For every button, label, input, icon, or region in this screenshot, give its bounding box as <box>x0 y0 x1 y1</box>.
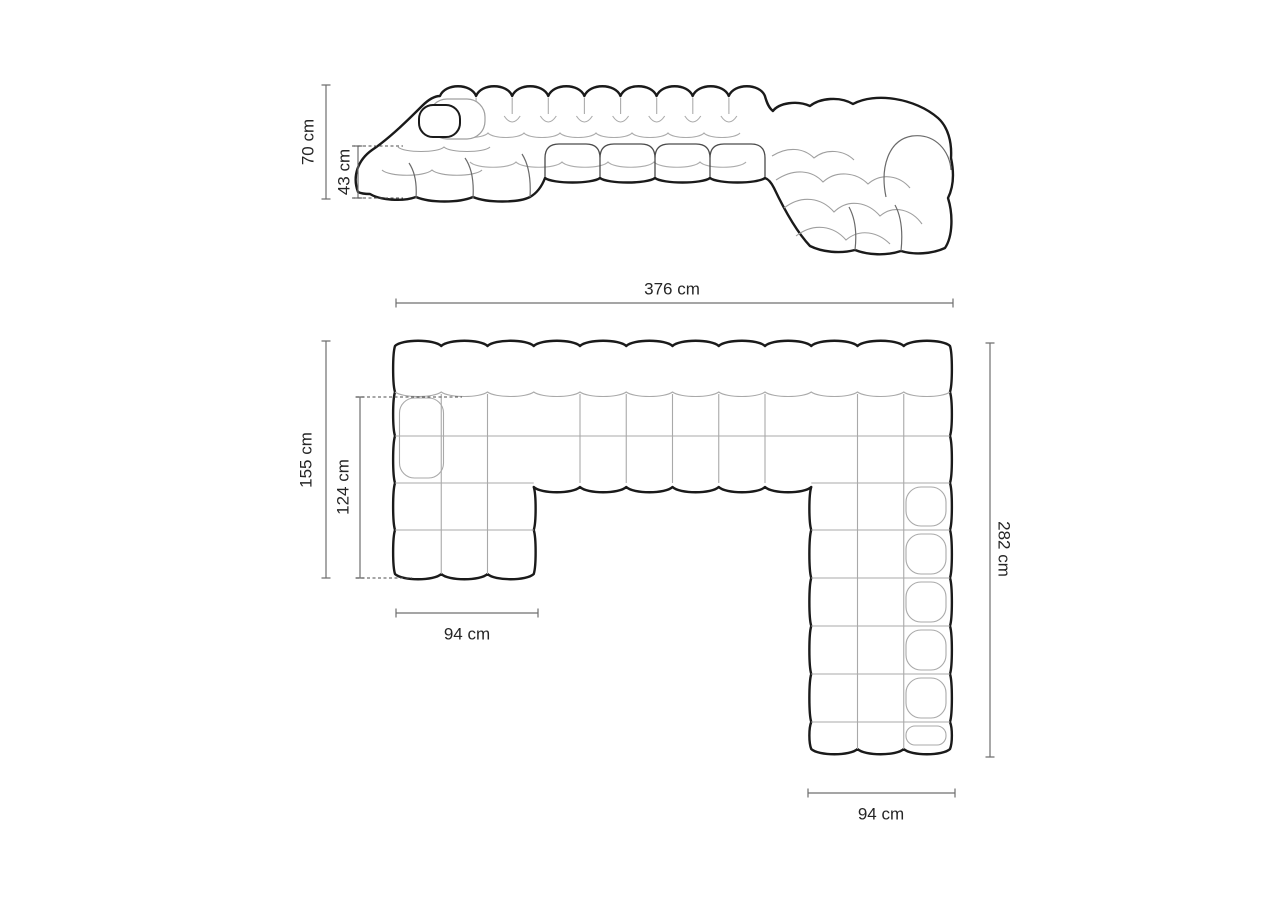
top-view-sofa-drawing <box>393 341 952 755</box>
dim-label-left-chaise-width: 94 cm <box>444 626 490 643</box>
front-view-sofa-drawing <box>356 86 953 254</box>
headrest-cushion-front <box>419 105 460 137</box>
dim-label-total-height: 70 cm <box>300 119 317 165</box>
dim-label-left-depth: 155 cm <box>298 432 315 488</box>
dim-label-right-depth: 282 cm <box>996 521 1013 577</box>
dim-label-total-width: 376 cm <box>644 281 700 298</box>
dim-label-left-inner-depth: 124 cm <box>335 459 352 515</box>
sofa-dimension-diagram: 70 cm 43 cm 376 cm 155 cm 124 cm 282 cm … <box>0 0 1280 905</box>
dim-label-seat-height: 43 cm <box>336 149 353 195</box>
dim-label-right-chaise-width: 94 cm <box>858 806 904 823</box>
sofa-line-drawings <box>0 0 1280 905</box>
